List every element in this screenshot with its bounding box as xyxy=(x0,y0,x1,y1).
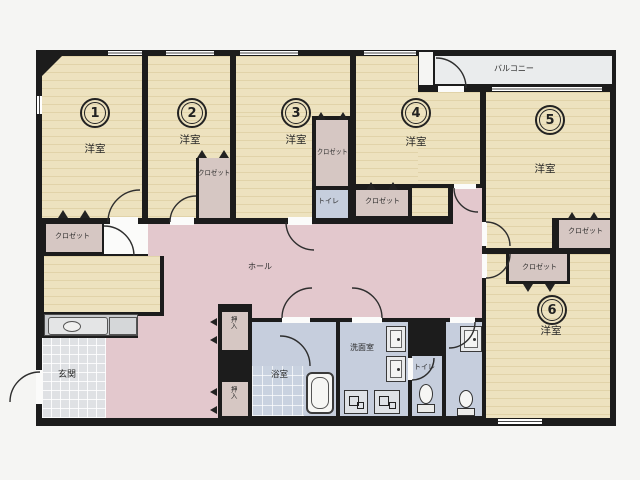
closet6-door-marks xyxy=(510,284,568,292)
room-1-badge: 1 xyxy=(80,98,110,128)
washing-machine-pan-1 xyxy=(344,390,368,414)
toilet-upper-label: トイレ xyxy=(318,198,339,206)
room-3-badge: 3 xyxy=(281,98,311,128)
toilet-tank-2 xyxy=(457,408,475,416)
hall-floor-upper xyxy=(148,224,453,256)
washroom-label: 洗面室 xyxy=(350,344,374,353)
closet5-door-marks xyxy=(558,212,608,220)
washing-machine-pan-2 xyxy=(374,390,400,414)
room-4-label: 洋室 xyxy=(401,137,431,149)
toilet-bowl-2 xyxy=(459,390,473,408)
hall-floor-arm xyxy=(453,188,482,318)
window-room1 xyxy=(108,51,142,55)
balcony-label: バルコニー xyxy=(494,65,534,74)
hall-floor-main xyxy=(164,256,453,318)
washbasin-1 xyxy=(386,326,406,352)
door-gap-room5 xyxy=(482,222,487,246)
door-gap-room3 xyxy=(288,217,312,225)
closet5-label: クロゼット xyxy=(568,228,603,236)
shoe-cabinet-side xyxy=(109,317,137,335)
room-2-badge: 2 xyxy=(177,98,207,128)
closet1-door-marks xyxy=(50,210,98,218)
closet3-label: クロゼット xyxy=(317,149,348,157)
door-gap-washroom xyxy=(352,317,382,323)
hall-floor-lower xyxy=(138,316,218,340)
toilet-tank-1 xyxy=(417,404,435,413)
door-gap-toilet2 xyxy=(450,317,475,323)
door-gap-entrance-hall xyxy=(104,224,148,254)
window-room1-left xyxy=(37,96,42,114)
window-room4 xyxy=(364,51,416,55)
room-6-badge: 6 xyxy=(537,295,567,325)
closet2-door-marks xyxy=(198,150,228,158)
room-5-floor-lower xyxy=(486,218,552,248)
storage1-label: 押入 xyxy=(229,316,236,329)
shoe-cabinet-handle xyxy=(63,321,81,332)
storage2-door-marks xyxy=(210,388,217,414)
room-1-label: 洋室 xyxy=(80,144,110,156)
door-gap-room4 xyxy=(454,184,476,189)
room-4-floor-lower xyxy=(412,188,448,216)
door-gap-room6 xyxy=(482,254,487,278)
window-room6 xyxy=(498,419,542,424)
washbasin-2 xyxy=(386,356,406,382)
closet2-label: クロゼット xyxy=(198,170,230,178)
window-room3 xyxy=(240,51,298,55)
bath-label: 浴室 xyxy=(271,371,288,380)
hall-floor-bottom xyxy=(106,338,218,418)
room-5-badge: 5 xyxy=(535,105,565,135)
entrance-hall-floor xyxy=(44,256,160,312)
hall-label: ホール xyxy=(240,263,280,272)
front-door-gap xyxy=(36,370,43,404)
closet1-label: クロゼット xyxy=(55,233,90,241)
room-2-label: 洋室 xyxy=(175,135,205,147)
room-5-label: 洋室 xyxy=(530,164,560,176)
toilet-bowl-1 xyxy=(419,384,433,404)
entrance-label: 玄関 xyxy=(58,371,76,381)
room-3-label: 洋室 xyxy=(281,135,311,147)
door-gap-room2 xyxy=(170,217,194,225)
storage1-door-marks xyxy=(210,318,217,348)
closet6-label: クロゼット xyxy=(522,264,557,272)
closet-room2 xyxy=(196,158,230,218)
window-room2 xyxy=(166,51,214,55)
bathtub xyxy=(306,372,334,414)
closet4-door-marks xyxy=(360,182,404,190)
washbasin-3 xyxy=(460,326,482,352)
corner-bevel xyxy=(42,56,62,76)
closet4-label: クロゼット xyxy=(365,198,400,206)
door-gap-bath xyxy=(282,317,310,323)
balcony-door-gap xyxy=(438,86,464,92)
shoe-cabinet xyxy=(44,314,138,336)
closet3-door-marks xyxy=(318,112,346,120)
toilet1-label: トイレ xyxy=(414,364,435,372)
room-4-badge: 4 xyxy=(401,98,431,128)
room-1-floor xyxy=(42,56,142,218)
wall-notch xyxy=(417,50,435,87)
room-6-label: 洋室 xyxy=(536,326,566,338)
window-room5 xyxy=(492,87,602,91)
storage2-label: 押入 xyxy=(229,386,236,399)
door-gap-toilet1 xyxy=(408,358,413,380)
room-3-floor xyxy=(236,116,312,218)
floor-plan-page: 1 2 3 4 5 6 洋室 洋室 洋室 洋室 洋室 洋室 ホール バルコニー … xyxy=(0,0,640,480)
